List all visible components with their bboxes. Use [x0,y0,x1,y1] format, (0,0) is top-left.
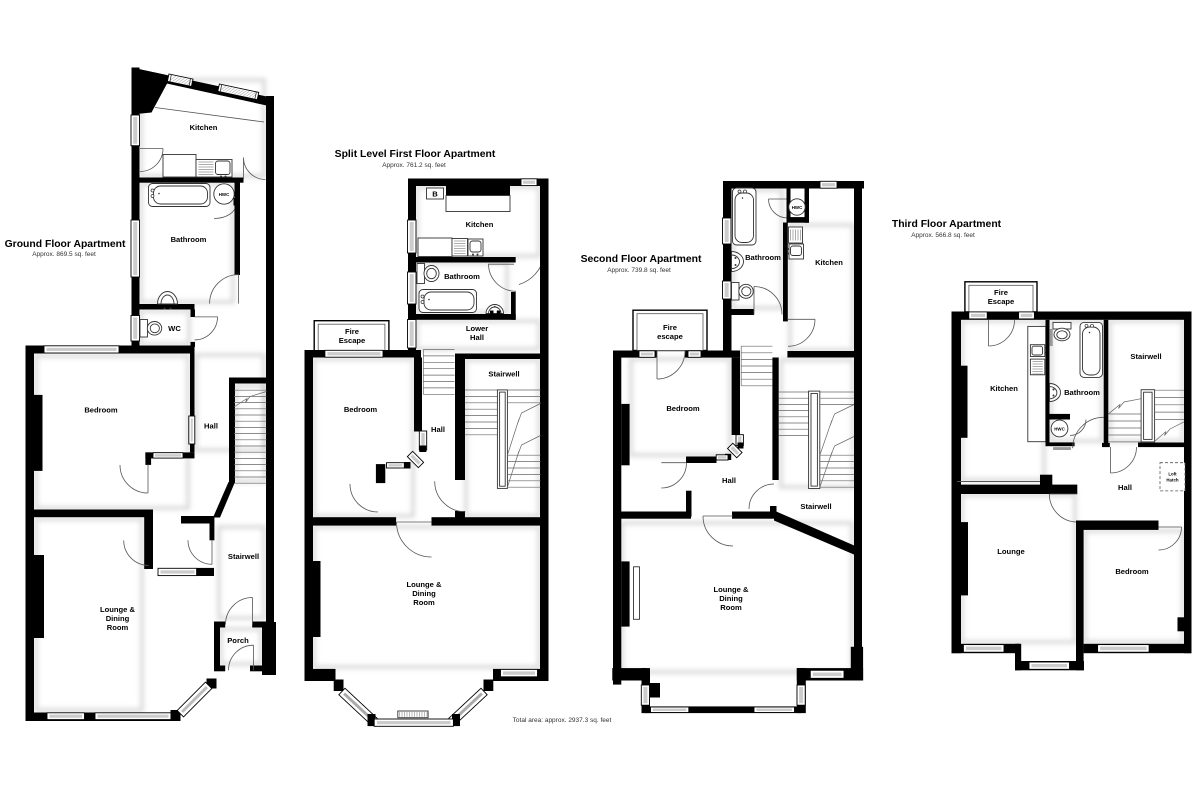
svg-text:Kitchen: Kitchen [466,220,494,229]
svg-text:Hall: Hall [470,333,484,342]
svg-text:Escape: Escape [988,297,1015,306]
svg-text:Lounge: Lounge [997,547,1024,556]
svg-text:Dining: Dining [719,594,743,603]
svg-text:Ground Floor Apartment: Ground Floor Apartment [5,239,126,250]
svg-text:escape: escape [657,332,683,341]
svg-text:Bedroom: Bedroom [666,404,700,413]
svg-text:Total area: approx. 2937.3 sq.: Total area: approx. 2937.3 sq. feet [513,717,612,724]
svg-text:Lounge &: Lounge & [713,585,749,594]
svg-text:Lower: Lower [466,324,488,333]
svg-text:Fire: Fire [663,323,677,332]
svg-text:Second Floor Apartment: Second Floor Apartment [581,254,702,265]
svg-text:Split Level First Floor Apartm: Split Level First Floor Apartment [335,149,496,160]
svg-text:Bathroom: Bathroom [171,235,207,244]
svg-text:HWC: HWC [792,205,803,210]
svg-text:Escape: Escape [339,336,366,345]
svg-text:Dining: Dining [412,589,436,598]
svg-text:Dining: Dining [106,614,130,623]
svg-text:Room: Room [107,623,129,632]
svg-text:Approx. 761.2 sq. feet: Approx. 761.2 sq. feet [382,162,446,169]
svg-text:B: B [432,190,438,199]
svg-text:Bedroom: Bedroom [84,406,118,415]
svg-text:Hatch: Hatch [1166,478,1179,483]
svg-text:Fire: Fire [994,288,1008,297]
svg-text:Lounge &: Lounge & [406,580,442,589]
svg-text:Kitchen: Kitchen [815,258,843,267]
svg-text:Approx. 566.8 sq. feet: Approx. 566.8 sq. feet [911,232,975,239]
svg-text:HWC: HWC [219,192,230,197]
svg-text:Porch: Porch [227,636,249,645]
svg-text:Bathroom: Bathroom [1064,388,1100,397]
svg-text:Hall: Hall [431,425,445,434]
svg-text:Approx. 739.8 sq. feet: Approx. 739.8 sq. feet [607,267,671,274]
svg-text:Lounge &: Lounge & [100,605,136,614]
svg-text:Hall: Hall [204,422,218,431]
svg-text:Loft: Loft [1168,472,1177,477]
svg-text:Third Floor Apartment: Third Floor Apartment [892,219,1002,230]
svg-text:Stairwell: Stairwell [800,502,831,511]
svg-text:Room: Room [413,598,435,607]
svg-text:Hall: Hall [1118,483,1132,492]
svg-text:Kitchen: Kitchen [990,384,1018,393]
svg-text:Bathroom: Bathroom [444,272,480,281]
svg-text:WC: WC [168,324,181,333]
svg-text:Fire: Fire [345,327,359,336]
svg-text:HWC: HWC [1054,426,1065,431]
svg-text:Bedroom: Bedroom [344,405,378,414]
svg-text:Bedroom: Bedroom [1115,567,1149,576]
svg-text:Stairwell: Stairwell [488,370,519,379]
svg-text:Approx. 869.5 sq. feet: Approx. 869.5 sq. feet [32,251,96,258]
svg-text:Stairwell: Stairwell [228,552,259,561]
svg-text:Kitchen: Kitchen [190,123,218,132]
svg-text:Bathroom: Bathroom [745,253,781,262]
svg-text:Hall: Hall [722,476,736,485]
svg-text:Stairwell: Stairwell [1130,352,1161,361]
svg-text:Room: Room [720,603,742,612]
